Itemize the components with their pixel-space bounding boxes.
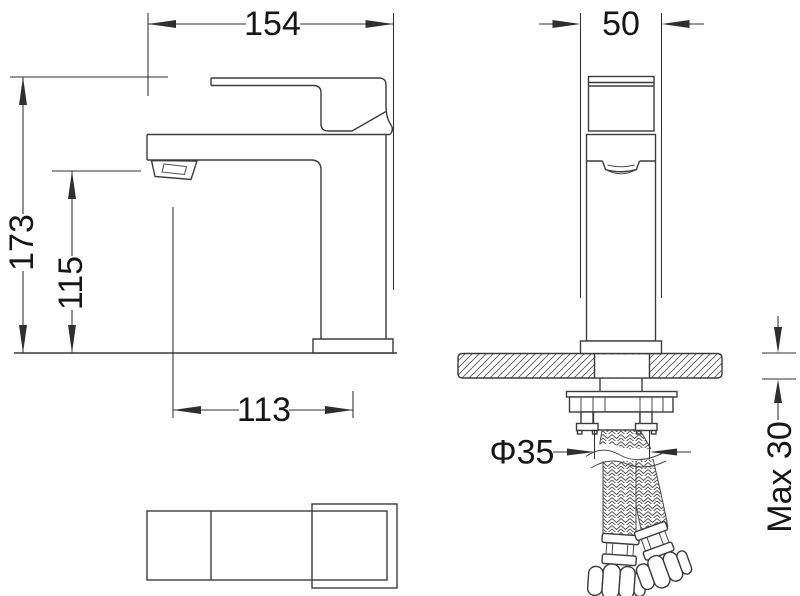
- faucet-front: [581, 77, 662, 354]
- handle-front: [589, 77, 655, 132]
- washer-plate: [567, 392, 678, 398]
- faucet-dimension-drawing: 154 173 115 113 50 Φ35: [0, 0, 800, 596]
- dim-154: 154: [148, 5, 394, 290]
- counter-section: [458, 354, 722, 379]
- mounting-hardware: [567, 378, 678, 434]
- technical-drawing-svg: 154 173 115 113 50 Φ35: [0, 0, 800, 596]
- dim-113-label: 113: [237, 391, 291, 429]
- nut-center-block: [594, 412, 641, 430]
- countertop: [458, 354, 722, 379]
- spout-top-view: [147, 511, 387, 580]
- dim-115: 115: [52, 171, 141, 353]
- base-plate-side: [313, 339, 393, 353]
- threaded-shank: [600, 378, 642, 392]
- dim-173: 173: [3, 77, 168, 353]
- dim-154-label: 154: [244, 5, 301, 43]
- hose-left: [603, 461, 636, 535]
- handle-side-profile: [211, 78, 392, 134]
- dim-113: 113: [173, 207, 353, 429]
- body-front: [587, 135, 656, 342]
- dim-173-label: 173: [3, 214, 41, 271]
- dim-phi35-label: Φ35: [490, 434, 555, 472]
- supply-hoses: [586, 430, 695, 596]
- side-view: [14, 78, 397, 353]
- spout-body-side: [147, 135, 393, 354]
- foot-left: [577, 424, 599, 431]
- foot-right: [636, 424, 658, 431]
- dim-50-label: 50: [602, 5, 640, 43]
- dim-115-label: 115: [52, 256, 90, 310]
- dim-max30-label: Max 30: [761, 421, 799, 533]
- top-view: [147, 504, 397, 588]
- aerator-side: [152, 161, 198, 180]
- dim-max30: Max 30: [761, 316, 799, 533]
- front-view: [458, 77, 722, 596]
- mounting-nut: [570, 397, 674, 412]
- base-plate-front: [581, 341, 662, 354]
